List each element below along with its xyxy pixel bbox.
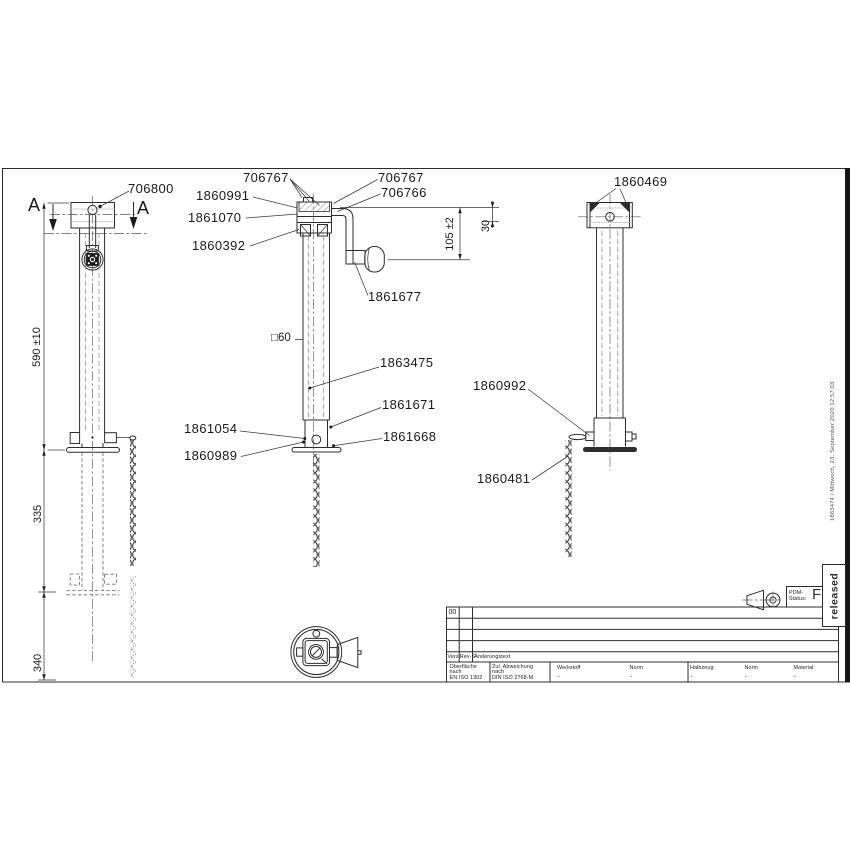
dim-stroke-upper: 335 [32, 505, 44, 523]
field-material-label: Material: [794, 665, 816, 671]
tolerance-standard: DIN ISO 2768-M [492, 675, 533, 681]
pdm-status-value: F [812, 586, 821, 603]
title-block-lines [447, 607, 839, 682]
surface-label-2: nach [450, 669, 462, 675]
callout-706766: 706766 [381, 185, 427, 200]
drawing-edge-note: 1863474 / Mittwoch, 23. September 2020 1… [830, 381, 836, 521]
field-halbzeug-label: Halbzeug [690, 665, 714, 671]
rear-view [528, 189, 642, 558]
field-material-value: - [794, 674, 796, 680]
rev-col-text: Änderungstext [474, 654, 510, 660]
front-view [38, 191, 149, 680]
callout-706767-left: 706767 [243, 170, 289, 185]
section-label-right: A [137, 198, 149, 219]
callout-1861070: 1861070 [188, 210, 241, 225]
callout-706767-right: 706767 [378, 170, 424, 185]
dim-crank-top: 30 [480, 220, 492, 232]
field-norm2-label: Norm [745, 665, 759, 671]
released-stamp: released [822, 564, 846, 627]
field-norm1-value: - [630, 674, 632, 680]
pdm-label-line2: Status: [789, 596, 806, 602]
callout-1861677: 1861677 [368, 289, 421, 304]
callout-1861671: 1861671 [382, 397, 435, 412]
field-werkstoff-label: Werkstoff [557, 665, 580, 671]
callout-tube-profile: □60 [271, 332, 291, 344]
callout-1860991: 1860991 [196, 188, 249, 203]
callout-706800: 706800 [128, 181, 174, 196]
pdm-label-line1: PDM- [789, 590, 803, 596]
side-view-crank [240, 179, 499, 567]
section-label-left: A [28, 195, 40, 216]
released-stamp-text: released [828, 572, 840, 619]
field-halbzeug-value: - [691, 674, 693, 680]
callout-1860481: 1860481 [477, 471, 530, 486]
callout-1861054: 1861054 [184, 421, 237, 436]
callout-1860469: 1860469 [614, 174, 667, 189]
field-norm2-value: - [745, 674, 747, 680]
top-view [291, 627, 361, 678]
dim-crank-height: 105 ±2 [444, 217, 456, 251]
tolerance-label-2: nach [492, 669, 504, 675]
field-werkstoff-value: - [558, 674, 560, 680]
drawing-linework [0, 0, 850, 850]
engineering-drawing: 706800 706767 1860991 1861070 1860392 70… [0, 0, 850, 850]
rev-col-vers: Vers. [448, 654, 461, 660]
surface-standard: EN ISO 1302 [450, 675, 483, 681]
callout-1860989: 1860989 [184, 448, 237, 463]
callout-1860392: 1860392 [192, 238, 245, 253]
drawing-frame [2, 168, 850, 682]
callout-1863475: 1863475 [380, 355, 433, 370]
revision-number: 00 [449, 609, 457, 616]
callout-1860992: 1860992 [473, 378, 526, 393]
dim-stroke-lower: 340 [32, 654, 44, 672]
rev-col-rev: Rev-S [460, 654, 475, 660]
dim-overall-height: 590 ±10 [31, 327, 43, 367]
callout-1861668: 1861668 [383, 429, 436, 444]
field-norm1-label: Norm [630, 665, 644, 671]
